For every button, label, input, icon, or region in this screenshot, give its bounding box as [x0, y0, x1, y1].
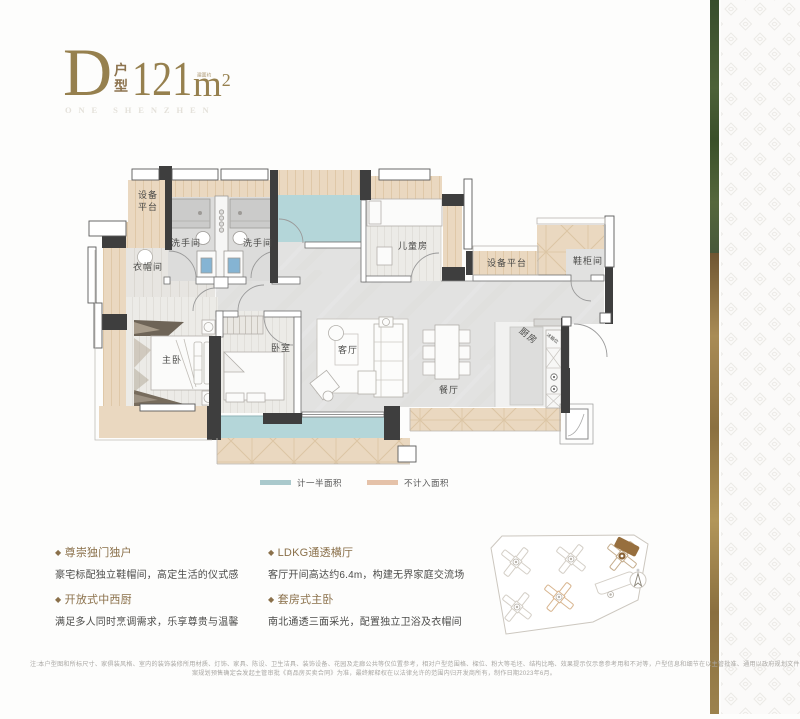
svg-text:衣帽间: 衣帽间 — [133, 261, 163, 272]
svg-text:客厅: 客厅 — [338, 344, 358, 355]
svg-text:主卧: 主卧 — [162, 354, 182, 365]
svg-text:洗手间: 洗手间 — [171, 237, 201, 248]
svg-text:儿童房: 儿童房 — [398, 240, 428, 251]
svg-text:餐厅: 餐厅 — [439, 384, 459, 395]
svg-text:平台: 平台 — [138, 201, 158, 212]
svg-text:洗手间: 洗手间 — [243, 237, 273, 248]
svg-text:鞋柜间: 鞋柜间 — [573, 255, 603, 266]
svg-text:卧室: 卧室 — [271, 342, 291, 353]
svg-text:设备: 设备 — [138, 189, 158, 200]
svg-text:设备平台: 设备平台 — [487, 257, 527, 268]
